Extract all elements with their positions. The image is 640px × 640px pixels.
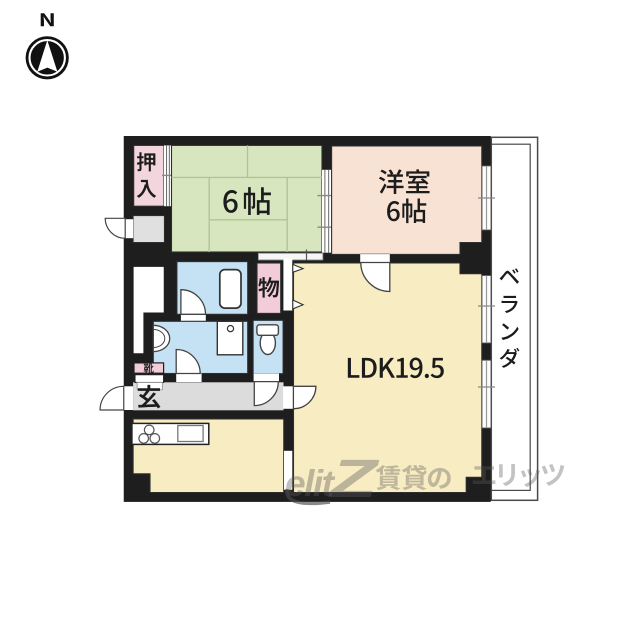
svg-text:Z: Z bbox=[327, 449, 380, 509]
svg-text:elit: elit bbox=[285, 463, 336, 504]
